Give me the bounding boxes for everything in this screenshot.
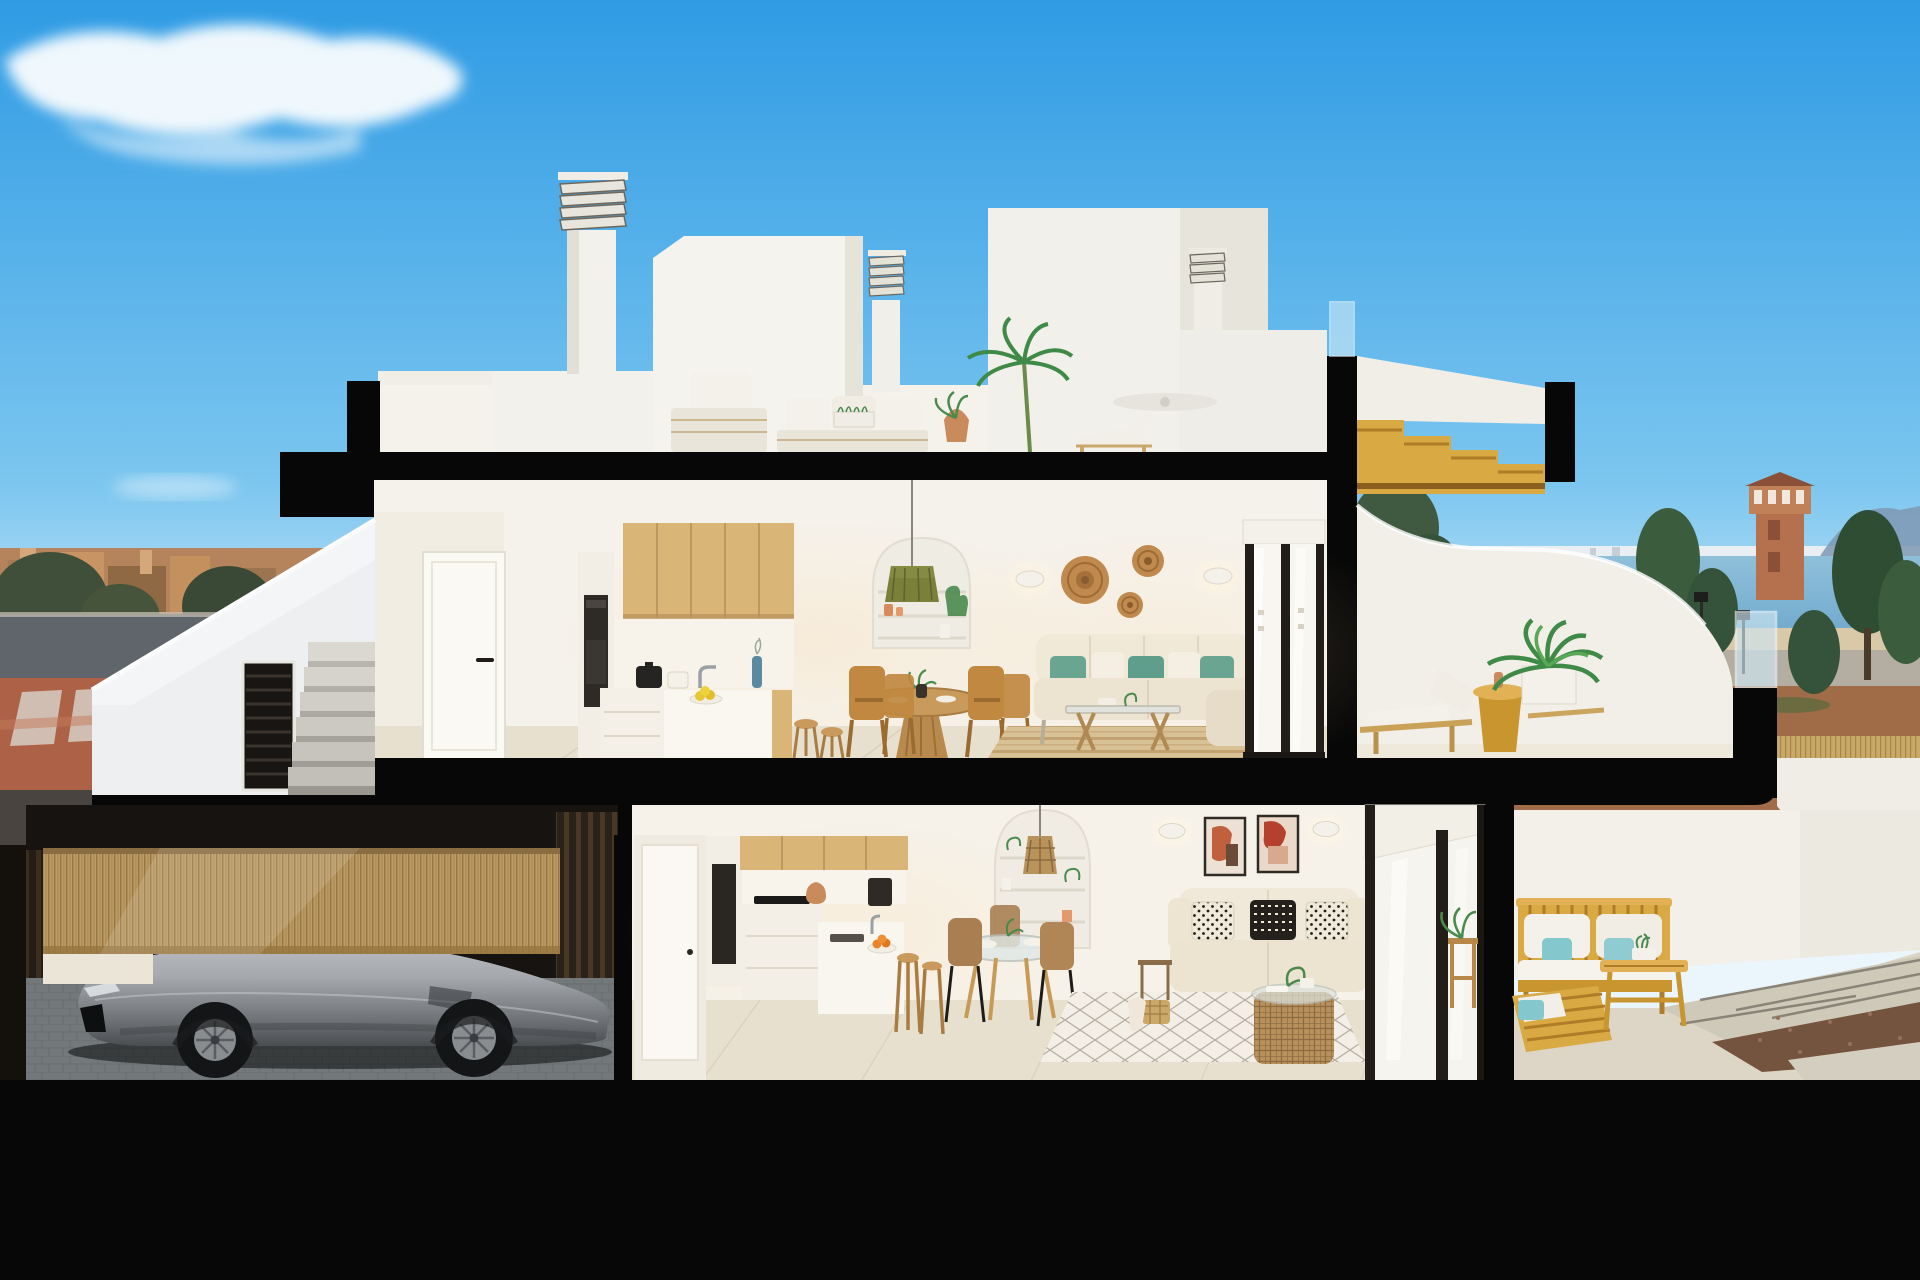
cross-section-render <box>0 0 1920 1280</box>
faint-cloud <box>113 475 237 499</box>
induction-hob <box>754 896 810 904</box>
lower-oven <box>712 864 736 964</box>
lower-glass-door <box>1365 805 1485 1083</box>
base-cabinet <box>600 688 664 760</box>
car-front-wheel <box>177 1002 253 1078</box>
door-frame-2 <box>1281 544 1290 758</box>
car-rear-wheel <box>435 999 513 1077</box>
terrace-wall-shade <box>1800 810 1920 958</box>
glass-balustrade <box>1736 612 1776 688</box>
roof-fan-hub <box>1160 397 1170 407</box>
render-stage <box>0 0 1920 1280</box>
chimney-right <box>1189 248 1227 332</box>
roof-slab-band <box>347 452 1327 480</box>
lower-sconce-left <box>1146 812 1198 852</box>
right-parapet-cut <box>1733 688 1777 798</box>
lower-sconce-right <box>1300 810 1352 850</box>
parapet-right <box>1180 330 1327 455</box>
base-slab <box>0 1080 1920 1280</box>
framed-art-left <box>1205 818 1245 875</box>
blind-box <box>1243 520 1325 544</box>
pergola-end-post <box>1545 382 1575 482</box>
upper-glass-door <box>1243 520 1325 759</box>
roof-glass-balustrade <box>1330 302 1354 356</box>
lower-entry-door <box>634 835 706 1083</box>
stair-bulkhead <box>492 371 663 455</box>
lower-sofa <box>1168 888 1370 992</box>
wall-sconce-right <box>1190 555 1246 599</box>
framed-art-right <box>1258 816 1298 872</box>
fence-base-wall <box>43 954 153 984</box>
upper-cabinets <box>623 523 794 618</box>
wall-sconce-left <box>1002 558 1058 602</box>
terrace-divider-cut <box>1484 805 1514 1083</box>
lower-door-frame-3 <box>1477 805 1485 1083</box>
blue-vase <box>752 656 762 688</box>
door-track <box>1243 752 1325 759</box>
mid-slab-band <box>374 758 1733 805</box>
lower-door-frame-1 <box>1365 805 1375 1083</box>
island-wood-side <box>772 690 792 760</box>
coffee-machine <box>868 878 892 906</box>
door-frame-1 <box>1245 544 1254 758</box>
roof-cut-column-left <box>347 381 380 458</box>
lower-door-frame-2 <box>1436 830 1448 1083</box>
door-handle <box>476 658 494 662</box>
lower-base-cabinet <box>742 904 822 1000</box>
hallway-door <box>423 552 505 760</box>
door-frame-3 <box>1316 544 1324 758</box>
terrace-floor <box>1357 744 1733 760</box>
garage-door-frame <box>0 845 26 1083</box>
sink <box>830 934 864 942</box>
louver-gate <box>243 662 294 790</box>
